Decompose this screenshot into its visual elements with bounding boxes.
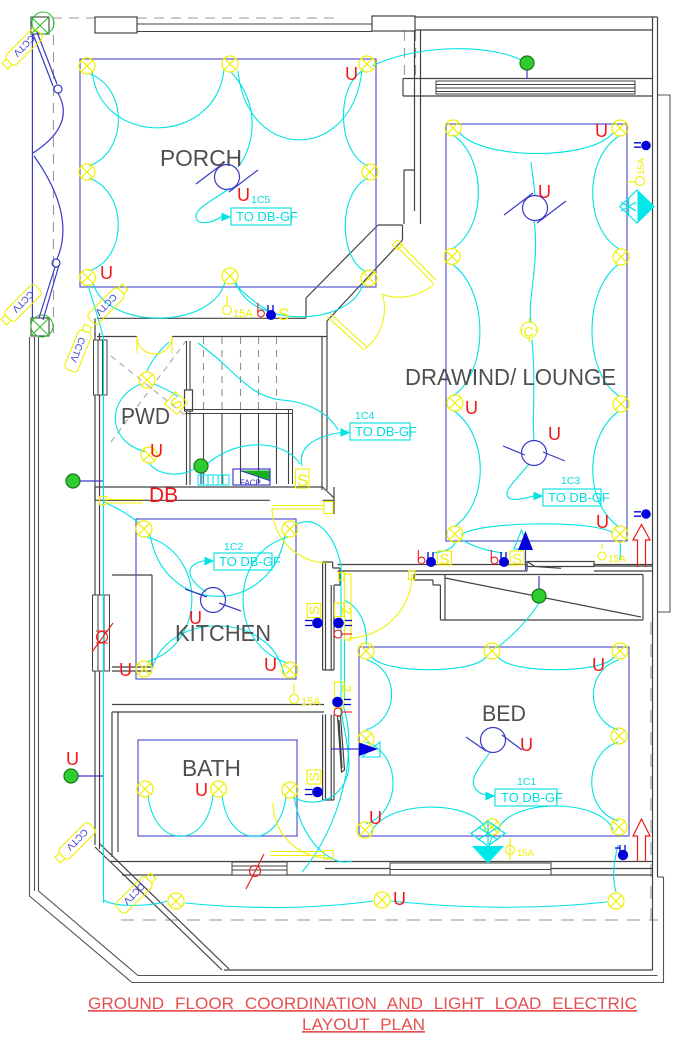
svg-text:BATH: BATH bbox=[182, 755, 241, 781]
svg-text:DRAWIND/ LOUNGE: DRAWIND/ LOUNGE bbox=[405, 364, 616, 390]
svg-text:U: U bbox=[100, 263, 113, 283]
svg-text:S: S bbox=[297, 471, 308, 490]
svg-text:U: U bbox=[520, 735, 533, 755]
svg-text:U: U bbox=[596, 512, 609, 532]
svg-text:U: U bbox=[66, 749, 79, 769]
svg-text:1C5: 1C5 bbox=[251, 194, 270, 206]
svg-text:U: U bbox=[150, 441, 163, 461]
svg-text:U: U bbox=[237, 185, 250, 205]
svg-text:U: U bbox=[264, 655, 277, 675]
svg-text:U: U bbox=[592, 655, 605, 675]
svg-text:S: S bbox=[278, 305, 289, 324]
svg-text:1C4: 1C4 bbox=[355, 410, 374, 422]
svg-text:PORCH: PORCH bbox=[160, 145, 242, 171]
svg-text:TO DB-GF: TO DB-GF bbox=[219, 554, 281, 569]
svg-text:U: U bbox=[369, 808, 382, 828]
svg-text:U: U bbox=[595, 121, 608, 141]
svg-text:S: S bbox=[440, 551, 450, 568]
svg-text:S: S bbox=[512, 551, 522, 568]
svg-text:TO DB-GF: TO DB-GF bbox=[355, 424, 417, 439]
svg-text:U: U bbox=[548, 424, 561, 444]
svg-text:LAYOUT PLAN: LAYOUT PLAN bbox=[302, 1015, 425, 1034]
svg-text:U: U bbox=[195, 780, 208, 800]
svg-text:U: U bbox=[345, 64, 358, 84]
svg-text:1C3: 1C3 bbox=[561, 475, 580, 487]
svg-text:2: 2 bbox=[339, 685, 354, 692]
svg-text:1C2: 1C2 bbox=[224, 541, 243, 553]
svg-text:U: U bbox=[538, 182, 551, 202]
svg-text:15A: 15A bbox=[233, 308, 253, 320]
svg-text:U: U bbox=[465, 398, 478, 418]
svg-text:C: C bbox=[524, 324, 534, 340]
svg-text:GROUND FLOOR COORDINATION AND: GROUND FLOOR COORDINATION AND LIGHT LOAD… bbox=[88, 994, 637, 1013]
svg-text:15A: 15A bbox=[636, 157, 647, 175]
svg-text:DB: DB bbox=[149, 484, 178, 507]
svg-text:U: U bbox=[393, 889, 406, 909]
svg-text:S: S bbox=[306, 606, 322, 615]
svg-text:1C1: 1C1 bbox=[517, 776, 536, 788]
svg-text:15A: 15A bbox=[301, 696, 321, 708]
svg-text:TO DB-GF: TO DB-GF bbox=[236, 209, 298, 224]
svg-text:BED: BED bbox=[482, 701, 526, 726]
svg-text:S: S bbox=[306, 772, 322, 781]
svg-text:PWD: PWD bbox=[121, 403, 170, 429]
svg-text:TO DB-GF: TO DB-GF bbox=[548, 490, 610, 505]
svg-text:15A: 15A bbox=[608, 554, 626, 565]
svg-text:FACP: FACP bbox=[240, 479, 261, 488]
svg-text:2: 2 bbox=[339, 607, 354, 614]
svg-text:U: U bbox=[119, 660, 132, 680]
svg-text:TO DB-GF: TO DB-GF bbox=[501, 790, 563, 805]
svg-text:U: U bbox=[189, 608, 202, 628]
svg-text:15A: 15A bbox=[517, 848, 535, 859]
